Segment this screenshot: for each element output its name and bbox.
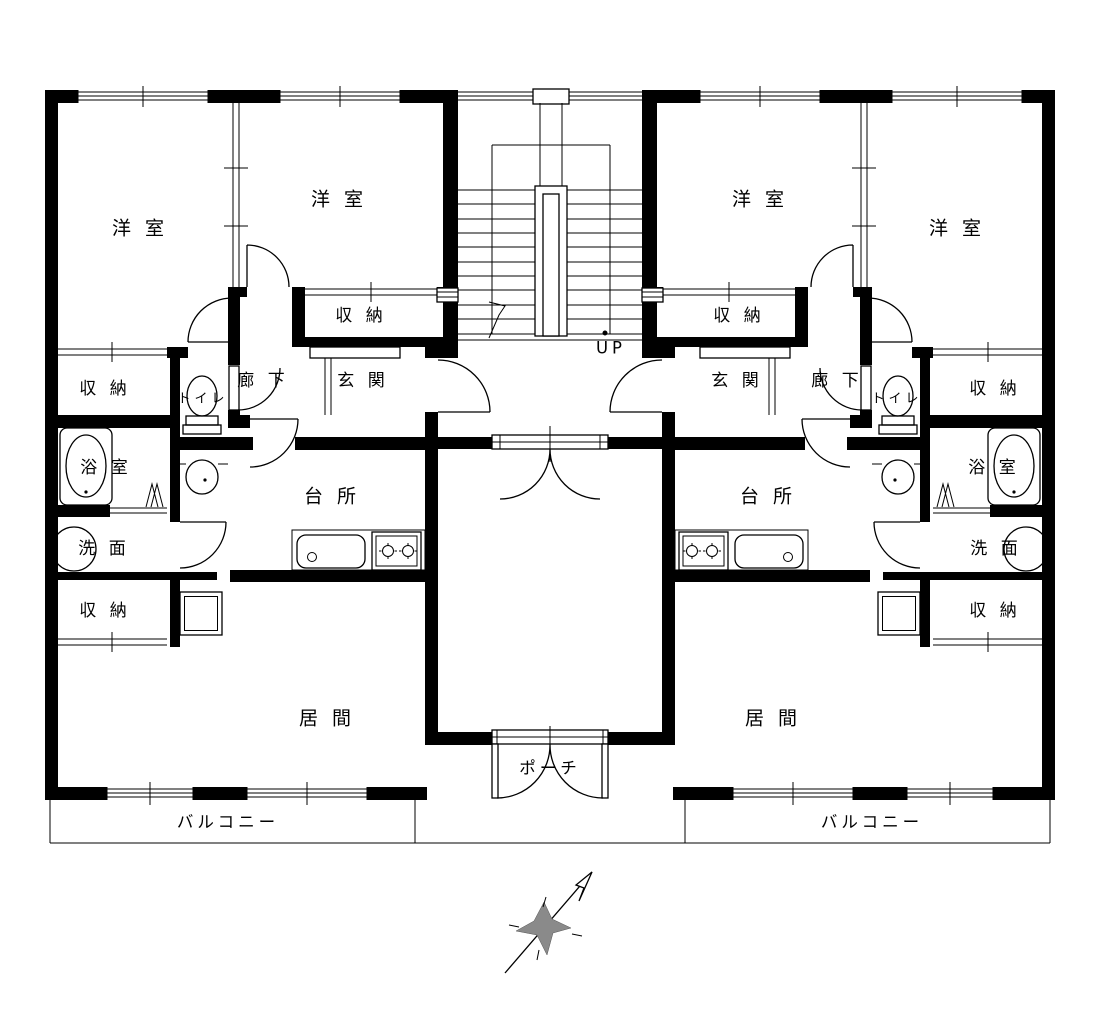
- label-bath-right: 浴 室: [968, 458, 1019, 478]
- label-bedroom-left-outer: 洋 室: [112, 218, 168, 240]
- label-entrance-left: 玄 関: [337, 371, 388, 391]
- stove-icon: [372, 532, 421, 570]
- building-entrance-door: [492, 426, 608, 499]
- label-storage-right-lower: 収 納: [969, 601, 1020, 621]
- stair-side-window: [642, 288, 663, 302]
- up-dot: [603, 331, 608, 336]
- washbasin-icon: [172, 460, 228, 494]
- label-stairs-up: UP: [596, 339, 626, 358]
- label-storage-left-lower: 収 納: [79, 601, 130, 621]
- label-living-right: 居 間: [745, 708, 801, 730]
- label-bath-left: 浴 室: [80, 458, 131, 478]
- label-bedroom-right-inner: 洋 室: [732, 189, 788, 211]
- label-storage-left-upper: 収 納: [335, 306, 386, 326]
- kitchen-sink-icon: [297, 535, 365, 568]
- floor-plan-page: UP 洋 室 洋 室 収 納 収 納 廊 下 玄 関 トイレ: [0, 0, 1100, 1036]
- label-corridor-left: 廊 下: [237, 371, 288, 391]
- label-storage-right-mid: 収 納: [969, 379, 1020, 399]
- stair-side-window: [437, 288, 458, 302]
- label-storage-left-mid: 収 納: [79, 379, 130, 399]
- label-washroom-left: 洗 面: [78, 539, 129, 559]
- label-toilet-left: トイレ: [177, 392, 228, 407]
- partition: [224, 103, 248, 287]
- label-entrance-right: 玄 関: [711, 371, 762, 391]
- label-balcony-right: バルコニー: [821, 813, 923, 832]
- label-kitchen-left: 台 所: [304, 486, 360, 508]
- label-living-left: 居 間: [299, 708, 355, 730]
- label-bedroom-left-inner: 洋 室: [311, 189, 367, 211]
- entrance-step: [325, 358, 331, 415]
- kitchen-counter: [292, 530, 425, 570]
- staircase: UP: [437, 89, 663, 358]
- walls: [45, 90, 443, 800]
- label-kitchen-right: 台 所: [740, 486, 796, 508]
- label-storage-right-upper: 収 納: [713, 306, 764, 326]
- label-washroom-right: 洗 面: [970, 539, 1021, 559]
- shoe-cabinet: [310, 347, 400, 358]
- label-balcony-left: バルコニー: [177, 813, 279, 832]
- duct-shaft: [180, 592, 222, 635]
- label-toilet-right: トイレ: [871, 392, 922, 407]
- label-bedroom-right-outer: 洋 室: [929, 218, 985, 240]
- central-core: UP: [415, 89, 685, 973]
- break-mark: [489, 302, 505, 338]
- north-arrow-icon: [505, 872, 592, 973]
- label-corridor-right: 廊 下: [811, 371, 862, 391]
- label-porch: ポーチ: [519, 759, 581, 778]
- floor-plan: UP 洋 室 洋 室 収 納 収 納 廊 下 玄 関 トイレ: [0, 0, 1100, 1036]
